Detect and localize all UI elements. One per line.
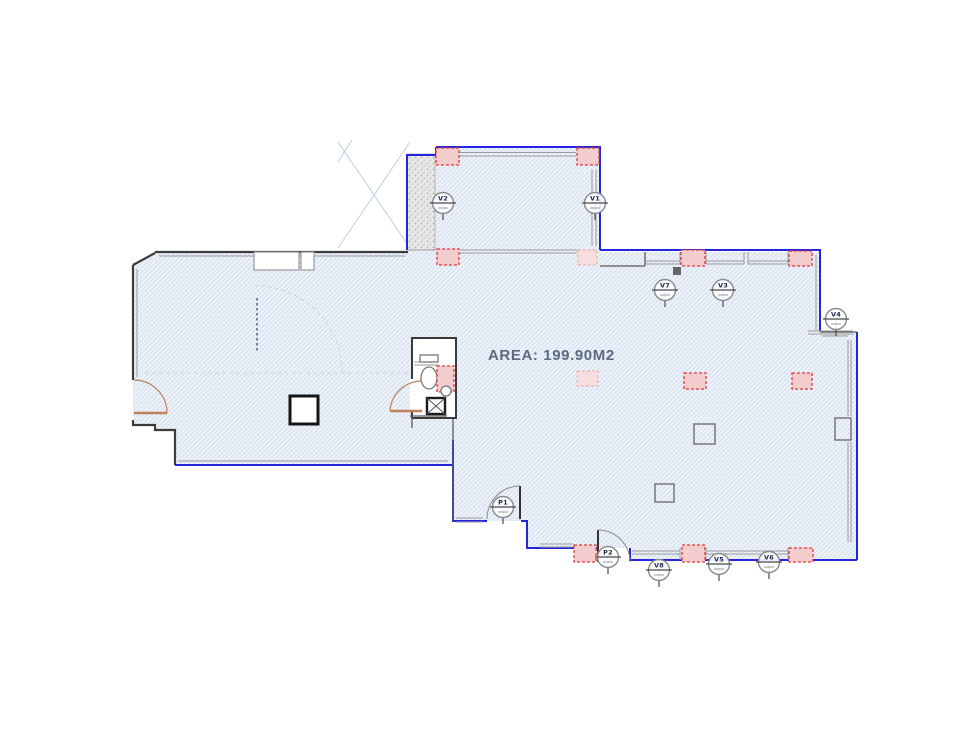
column-shaft xyxy=(290,396,318,424)
svg-text:P2: P2 xyxy=(603,549,613,557)
construction-lines xyxy=(338,140,410,248)
door-opening-gap xyxy=(410,379,414,412)
wall-detail-block xyxy=(673,267,681,275)
svg-text:V6: V6 xyxy=(764,554,774,562)
svg-text:V5: V5 xyxy=(714,556,724,564)
marker-v5: V5 xyxy=(706,554,732,582)
marker-v6: V6 xyxy=(756,552,782,580)
stone-wall-band xyxy=(407,154,435,250)
bathroom xyxy=(410,338,456,428)
marker-p2: P2 xyxy=(595,547,621,575)
wall-niche-small xyxy=(301,252,314,270)
svg-text:V3: V3 xyxy=(718,282,728,290)
svg-text:V8: V8 xyxy=(654,562,664,570)
sink-icon xyxy=(441,386,451,396)
floor-plan-page: AREA: 199.90M2 V2 V1 V7 V3 V4 P1 P2 xyxy=(0,0,979,734)
floor-plan-drawing: AREA: 199.90M2 V2 V1 V7 V3 V4 P1 P2 xyxy=(0,0,979,734)
marker-v8: V8 xyxy=(646,560,672,588)
svg-text:V7: V7 xyxy=(660,282,670,290)
svg-text:V1: V1 xyxy=(590,195,600,203)
area-label: AREA: 199.90M2 xyxy=(488,347,615,364)
svg-text:V2: V2 xyxy=(438,195,448,203)
svg-text:P1: P1 xyxy=(498,499,508,507)
svg-text:V4: V4 xyxy=(831,311,841,319)
wall-niche xyxy=(254,252,299,270)
toilet-tank xyxy=(420,355,438,362)
toilet-icon xyxy=(421,367,437,389)
